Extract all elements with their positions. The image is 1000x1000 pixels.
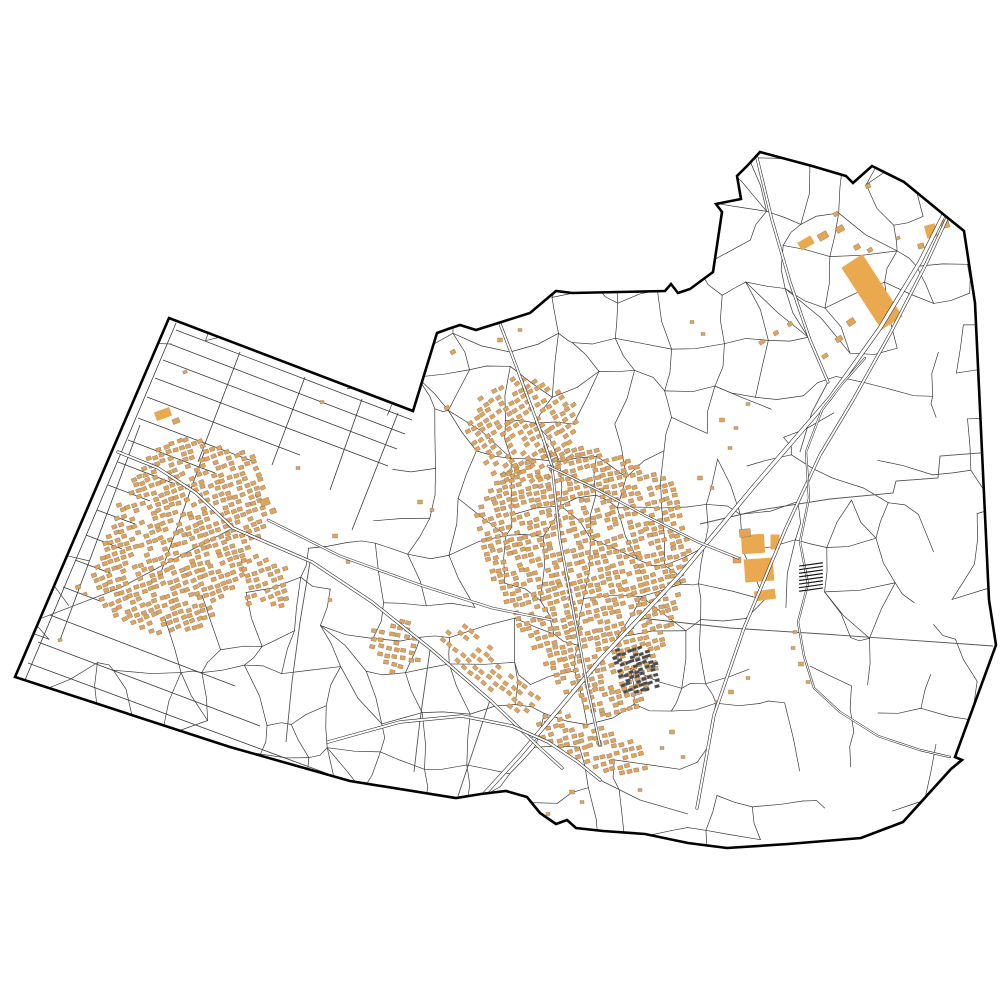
map-canvas	[0, 0, 1000, 1000]
map-content	[0, 115, 1000, 942]
cluster-west-settlement	[91, 437, 267, 635]
cadastral-map	[0, 0, 1000, 1000]
cluster-village-west	[369, 619, 420, 674]
buildings	[58, 183, 950, 815]
municipal-boundary	[15, 152, 996, 848]
railway-hatches	[799, 563, 823, 592]
cluster-north-settlement	[465, 376, 579, 483]
roads	[118, 158, 958, 848]
stream	[798, 358, 950, 757]
road-ne-top	[757, 158, 828, 382]
cluster-west-sub	[241, 554, 289, 608]
cluster-town-core	[474, 446, 691, 717]
